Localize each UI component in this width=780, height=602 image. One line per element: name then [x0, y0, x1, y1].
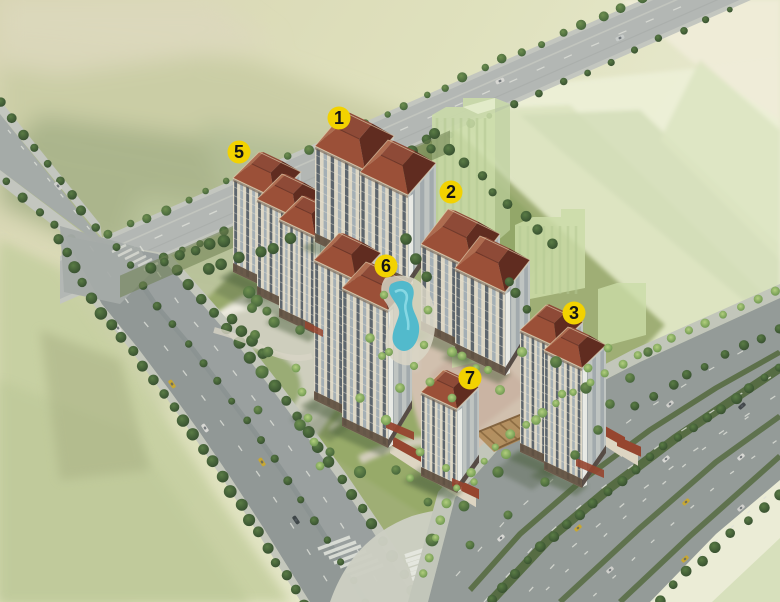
- svg-text:5: 5: [234, 142, 244, 162]
- svg-text:7: 7: [465, 368, 475, 388]
- svg-text:2: 2: [446, 182, 456, 202]
- svg-text:6: 6: [381, 256, 391, 276]
- svg-text:1: 1: [334, 108, 344, 128]
- svg-text:3: 3: [569, 303, 579, 323]
